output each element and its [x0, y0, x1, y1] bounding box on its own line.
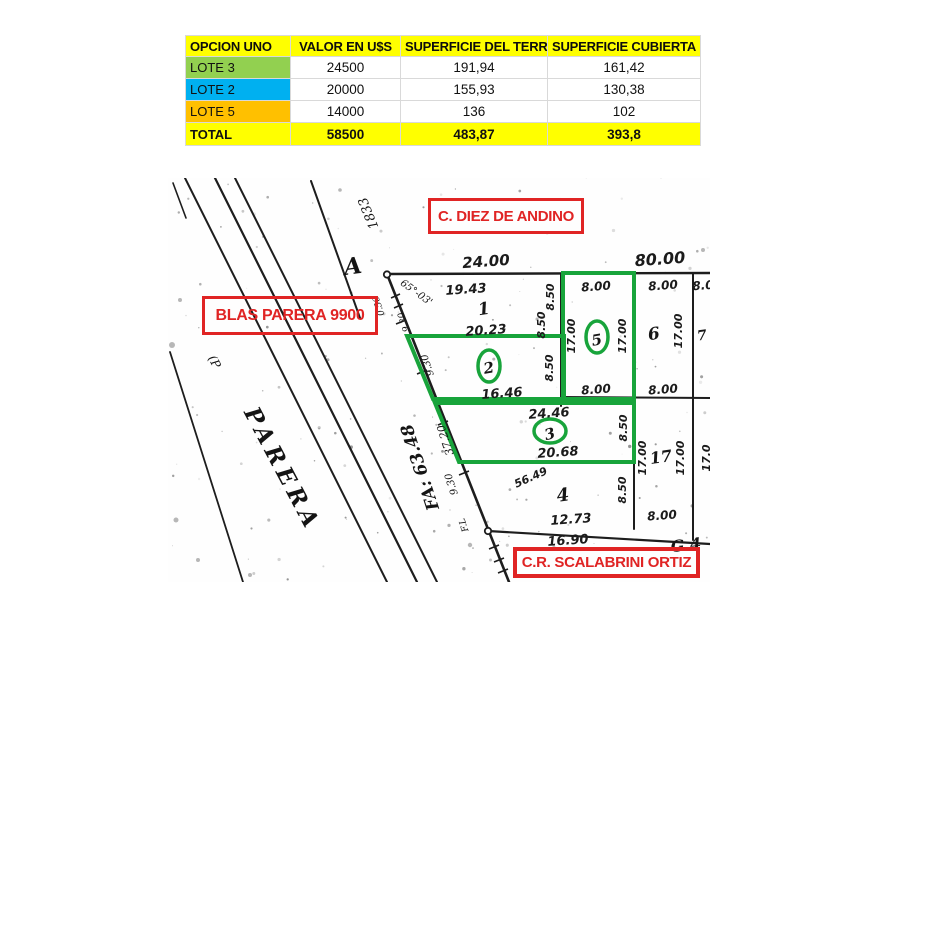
dim-17-00-lot17-right: 17.00 [674, 440, 687, 475]
street-label-blas-parera: BLAS PARERA 9900 [202, 296, 378, 335]
street-label-diez-de-andino: C. DIEZ DE ANDINO [428, 198, 584, 234]
hand-1833: 1833 [356, 195, 382, 231]
hand-9-30-c: 9.30 [443, 471, 461, 496]
listing-page: OPCION UNO VALOR EN U$S SUPERFICIE DEL T… [0, 0, 950, 950]
table-row-lote-5: LOTE 514000136102 [186, 101, 701, 123]
corner-point-south [485, 528, 491, 534]
lot-superficie-terreno: 136 [401, 101, 548, 123]
lot-valor: 24500 [291, 57, 401, 79]
dim-12-73: 12.73 [550, 511, 592, 529]
lot-number-5-circled: 5 [590, 330, 603, 350]
hand-paren-p: (P [205, 353, 224, 372]
total-superficie-terreno: 483,87 [401, 123, 548, 146]
total-superficie-cubierta: 393,8 [548, 123, 701, 146]
lot-number-4: 4 [555, 484, 570, 507]
dim-8-00-lot17-bottom: 8.00 [647, 507, 678, 523]
lot-number-7-partial: 7 [696, 327, 708, 344]
table-row-lote-2: LOTE 220000155,93130,38 [186, 79, 701, 101]
dim-17-00-lot5-right: 17.00 [616, 318, 629, 353]
dim-24-46: 24.46 [528, 405, 570, 423]
hand-9-30-a: 9.30 [397, 311, 413, 333]
lot-superficie-cubierta: 130,38 [548, 79, 701, 101]
dim-56-49: 56.49 [512, 464, 549, 490]
corner-point-a [384, 271, 390, 277]
dim-8-50-a: 8.50 [544, 283, 557, 310]
cadastral-map: 24.0080.0019.4320.2316.4624.4620.6812.73… [168, 178, 710, 582]
column-header-valor: VALOR EN U$S [291, 36, 401, 57]
dim-17-00-lot6: 17.00 [672, 313, 685, 348]
street-label-text: BLAS PARERA 9900 [215, 307, 364, 325]
lot-superficie-cubierta: 161,42 [548, 57, 701, 79]
column-header-opcion: OPCION UNO [186, 36, 291, 57]
lot-label: LOTE 5 [186, 101, 291, 123]
table-header-row: OPCION UNO VALOR EN U$S SUPERFICIE DEL T… [186, 36, 701, 57]
hand-parera-street-name: PARERA [238, 402, 327, 537]
dim-8-50-lot3: 8.50 [617, 414, 630, 441]
dim-17-00-lot17-left: 17.00 [636, 440, 649, 475]
lot-superficie-cubierta: 102 [548, 101, 701, 123]
point-a-marker-label: A [340, 252, 363, 282]
street-label-scalabrini-ortiz: C.R. SCALABRINI ORTIZ [513, 547, 700, 578]
dim-8-00-lot5-top: 8.00 [581, 278, 612, 294]
lot-valor: 20000 [291, 79, 401, 101]
dim-19-43: 19.43 [445, 281, 487, 299]
column-header-superficie-cubierta: SUPERFICIE CUBIERTA [548, 36, 701, 57]
dim-8-50-c: 8.50 [543, 354, 556, 381]
column-header-superficie-terreno: SUPERFICIE DEL TERR. [401, 36, 548, 57]
lot-label: LOTE 3 [186, 57, 291, 79]
dim-8-00-lot5-bottom: 8.00 [581, 381, 612, 397]
lot-superficie-terreno: 191,94 [401, 57, 548, 79]
lot-valor: 14000 [291, 101, 401, 123]
hand-f-l: F.L [458, 517, 472, 534]
dim-80-00: 80.00 [634, 248, 686, 270]
dim-24-00: 24.00 [462, 251, 511, 272]
lot-number-2-circled: 2 [481, 358, 495, 378]
total-label: TOTAL [186, 123, 291, 146]
lot-label: LOTE 2 [186, 79, 291, 101]
dim-8-50-b: 8.50 [535, 311, 548, 338]
lot-table-body: LOTE 324500191,94161,42LOTE 220000155,93… [186, 57, 701, 123]
dim-8-0-partial: 8.0 [692, 278, 710, 293]
dim-17-00-lot5-left: 17.00 [565, 318, 578, 353]
dim-8-00-lot6-bottom: 8.00 [648, 381, 679, 397]
dim-17-0-partial: 17.0 [700, 444, 710, 471]
lot-number-17: 17 [649, 446, 674, 468]
table-row-lote-3: LOTE 324500191,94161,42 [186, 57, 701, 79]
street-label-text: C. DIEZ DE ANDINO [438, 208, 574, 225]
dim-20-68: 20.68 [537, 444, 579, 462]
dim-8-50-lot4: 8.50 [616, 476, 629, 503]
scan-noise [169, 178, 709, 581]
lot-comparison-table: OPCION UNO VALOR EN U$S SUPERFICIE DEL T… [185, 35, 701, 146]
street-label-text: C.R. SCALABRINI ORTIZ [522, 554, 692, 571]
dim-8-00-lot6-top: 8.00 [648, 277, 679, 293]
dim-20-23: 20.23 [465, 322, 507, 340]
lot-superficie-terreno: 155,93 [401, 79, 548, 101]
dim-16-46: 16.46 [481, 385, 523, 403]
table-total-row: TOTAL 58500 483,87 393,8 [186, 123, 701, 146]
hand-angle-65-03: 65°-03' [398, 278, 434, 308]
total-valor: 58500 [291, 123, 401, 146]
map-drawing: 24.0080.0019.4320.2316.4624.4620.6812.73… [168, 178, 710, 582]
lot-number-1: 1 [477, 299, 492, 320]
lot-number-6: 6 [647, 324, 662, 345]
